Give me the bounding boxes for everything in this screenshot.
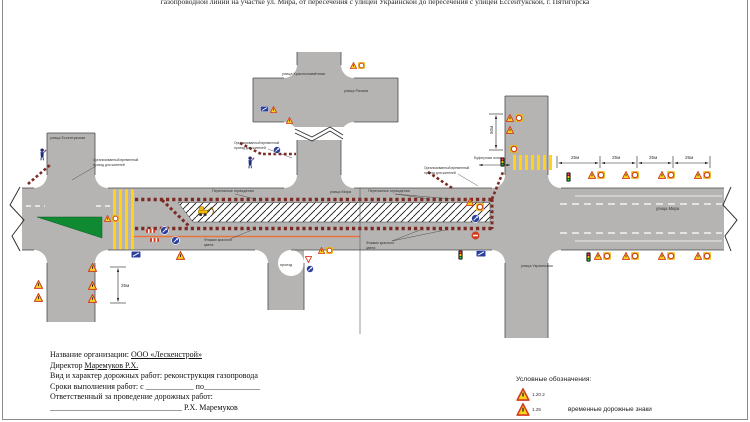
traffic-light-icon bbox=[458, 250, 462, 259]
fences-annotation: Переносные ограждения bbox=[368, 189, 410, 193]
org-name-label: Название организации: bbox=[50, 350, 131, 359]
speed-sign-icon bbox=[326, 247, 332, 253]
info-sign-icon bbox=[476, 250, 485, 256]
temp-passage-annotation: проезд для жителей bbox=[424, 171, 456, 175]
street-label-ukrainskaya: улица Украинская bbox=[521, 264, 553, 268]
responsible-line: Ответственный за проведение дорожных раб… bbox=[50, 392, 380, 403]
legend: Условные обозначения: 1.20.2 1.25 времен… bbox=[516, 376, 742, 417]
warning-triangle-icon bbox=[694, 253, 701, 260]
speed-sign-icon bbox=[667, 252, 674, 259]
dimension-label: 25м bbox=[571, 155, 579, 160]
warning-triangle-icon bbox=[34, 294, 42, 302]
dimension-label: 25м bbox=[649, 155, 657, 160]
work-dates-line: Сроки выполнения работ: с ____________ п… bbox=[50, 382, 380, 393]
warning-triangle-icon bbox=[588, 172, 595, 179]
krasnoznamennaya-road bbox=[253, 78, 398, 122]
ukrainskaya-lower-arm bbox=[505, 249, 548, 338]
warning-triangle-icon bbox=[658, 172, 665, 179]
fences-annotation: Переносные ограждения bbox=[212, 189, 254, 193]
warning-triangle-icon bbox=[34, 281, 42, 289]
warning-triangle-icon bbox=[516, 403, 530, 416]
temp-passage-annotation: Организованный временный bbox=[234, 141, 279, 145]
warning-triangle-icon bbox=[622, 172, 629, 179]
road-network bbox=[8, 52, 738, 338]
dimension-label: 50м bbox=[489, 126, 494, 134]
ukrainskaya-upper-arm bbox=[505, 96, 548, 189]
warning-triangle-icon bbox=[622, 253, 629, 260]
detour-sign-icon bbox=[161, 227, 169, 235]
flags-annotation: Флажки красного bbox=[204, 238, 232, 242]
detour-sign-icon bbox=[472, 215, 480, 223]
flagman-icon bbox=[248, 156, 254, 168]
traffic-light-icon bbox=[566, 172, 570, 181]
signature-name: Р.Х. Маремуков bbox=[184, 403, 238, 412]
work-zone-hatched-area bbox=[178, 203, 490, 223]
work-type-line: Вид и характер дорожных работ: реконстру… bbox=[50, 371, 380, 382]
traffic-scheme-page: газопроводной линии на участке ул. Мира,… bbox=[0, 0, 750, 422]
speed-sign-icon bbox=[515, 114, 522, 121]
dimension-label: 25м bbox=[612, 155, 620, 160]
legend-row-2: 1.25 временные дорожные знаки bbox=[516, 402, 742, 417]
signature-line: _________________________________ Р.Х. М… bbox=[50, 403, 380, 414]
warning-triangle-icon bbox=[658, 253, 665, 260]
speed-sign-icon bbox=[597, 171, 604, 178]
barrier-board-icon bbox=[150, 238, 159, 242]
legend-caption: временные дорожные знаки bbox=[568, 406, 652, 413]
signature-underline: _________________________________ bbox=[50, 403, 182, 412]
flags-annotation: цвета bbox=[366, 246, 375, 250]
essentukskaya-upper-arm bbox=[47, 133, 95, 189]
detour-sign-icon bbox=[172, 237, 180, 245]
org-name-value: ООО «Лескенстрой» bbox=[131, 350, 202, 359]
speed-sign-icon bbox=[631, 171, 638, 178]
temp-passage-annotation: Организованный временный bbox=[93, 158, 138, 162]
street-label-proezd: проезд bbox=[280, 263, 293, 267]
speed-sign-icon bbox=[703, 252, 710, 259]
warning-triangle-icon bbox=[176, 252, 184, 260]
dimension-label: 25м bbox=[121, 283, 129, 288]
no-entry-icon bbox=[472, 232, 480, 240]
detour-sign-icon bbox=[306, 265, 313, 272]
legend-row-1: 1.20.2 bbox=[516, 387, 742, 402]
street-label-mira: улица Мира bbox=[656, 206, 680, 211]
legend-sign1-number: 1.20.2 bbox=[532, 392, 558, 397]
warning-triangle-icon bbox=[516, 388, 530, 401]
traffic-light-icon bbox=[586, 252, 590, 261]
temp-passage-annotation: Организованный временный bbox=[424, 166, 469, 170]
temp-passage-annotation: проезд для жителей bbox=[93, 163, 125, 167]
info-sign-icon bbox=[131, 251, 140, 257]
warning-triangle-icon bbox=[694, 172, 701, 179]
flagman-icon bbox=[40, 148, 46, 160]
street-label-krasnoznamennaya: улица Краснознамённая bbox=[282, 72, 325, 76]
speed-sign-icon bbox=[112, 215, 118, 221]
director-label: Директор bbox=[50, 361, 84, 370]
flags-annotation: цвета bbox=[204, 243, 213, 247]
speed-sign-icon bbox=[603, 252, 610, 259]
legend-title: Условные обозначения: bbox=[516, 376, 742, 383]
legend-sign2-number: 1.25 bbox=[532, 407, 558, 412]
speed-sign-icon bbox=[631, 252, 638, 259]
speed-sign-icon bbox=[510, 145, 517, 152]
speed-sign-icon bbox=[703, 171, 710, 178]
org-name-line: Название организации: ООО «Лескенстрой» bbox=[50, 350, 380, 361]
dimension-label: 25м bbox=[685, 155, 693, 160]
give-way-icon bbox=[305, 257, 311, 263]
temp-passage-annotation: проезд для жителей bbox=[234, 146, 266, 150]
organization-info-block: Название организации: ООО «Лескенстрой» … bbox=[50, 350, 380, 413]
info-sign-icon bbox=[260, 106, 268, 111]
buffer-zone-label: Буферная зона bbox=[474, 156, 502, 160]
director-line: Директор Маремуков Р.Х. bbox=[50, 361, 380, 372]
essentukskaya-lower-arm bbox=[47, 249, 95, 322]
flags-annotation: Флажки красного bbox=[366, 241, 394, 245]
speed-sign-icon bbox=[358, 62, 364, 68]
street-label-razina: улица Разина bbox=[344, 89, 369, 93]
director-value: Маремуков Р.Х. bbox=[84, 361, 138, 370]
warning-triangle-icon bbox=[594, 253, 601, 260]
street-label-essentukskaya: улица Ессентукская bbox=[50, 136, 85, 140]
speed-sign-icon bbox=[667, 171, 674, 178]
barrier-board-icon bbox=[146, 229, 155, 233]
speed-sign-icon bbox=[476, 203, 483, 210]
street-label-mira: улица Мира bbox=[330, 190, 352, 194]
